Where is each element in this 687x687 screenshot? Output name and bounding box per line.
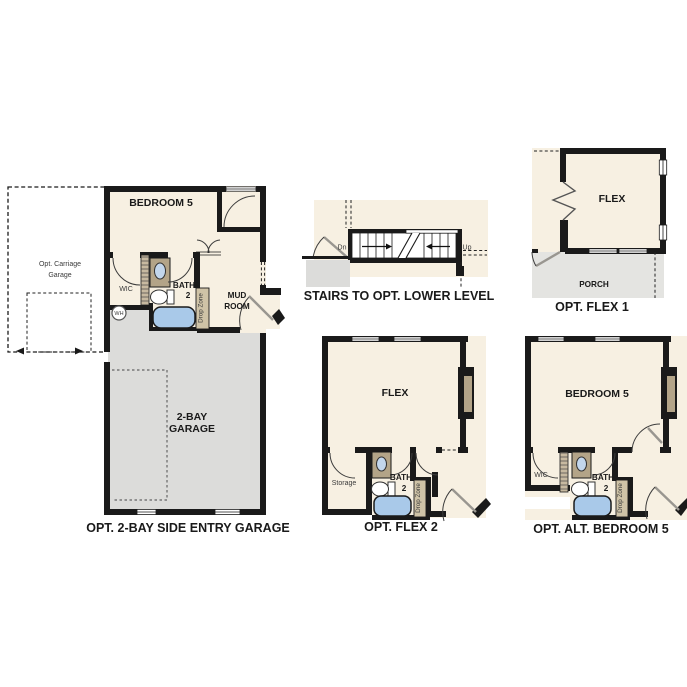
wic-label: WIC (534, 472, 548, 479)
bedroom5-label: BEDROOM 5 (129, 197, 193, 209)
stairs-plan: Dn Up STAIRS TO OPT. LOWER LEVEL (302, 200, 495, 303)
floorplan-options-sheet: Opt. Carriage Garage (0, 0, 687, 687)
bath2-label-1: BATH (390, 473, 412, 482)
flex2-plan-caption: OPT. FLEX 2 (364, 520, 438, 534)
flex2-room-label: FLEX (382, 387, 409, 399)
flex2-plan: FLEX Storage BATH 2 Drop Zone OPT. FLEX … (320, 336, 491, 534)
alt-bedroom5-plan: BEDROOM 5 WIC BATH 2 Drop Zone OPT. ALT.… (523, 336, 687, 536)
swing-arrow-right-icon (75, 348, 83, 355)
svg-text:WH: WH (114, 311, 123, 317)
alt-bedroom5-room-label: BEDROOM 5 (565, 388, 629, 400)
bathtub-icon (574, 496, 611, 516)
bath2-label-2: 2 (604, 484, 609, 493)
drop-zone-label: Drop Zone (415, 483, 422, 513)
drop-zone-label: Drop Zone (198, 293, 205, 323)
bath2-label-2: 2 (186, 291, 191, 300)
vanity-sink-icon (150, 258, 170, 287)
garage-plan: Opt. Carriage Garage (8, 186, 290, 535)
bathtub-icon (374, 496, 411, 516)
stairs-up-label: Up (463, 245, 472, 252)
fireplace-icon (458, 367, 474, 419)
garage-label-2: GARAGE (169, 423, 215, 435)
garage-label-1: 2-BAY (177, 411, 208, 423)
toilet-icon (372, 482, 396, 496)
alt-bedroom5-plan-caption: OPT. ALT. BEDROOM 5 (533, 522, 668, 536)
carriage-garage-label-2: Garage (48, 272, 71, 279)
toilet-icon (151, 290, 175, 304)
bath2-label-1: BATH (173, 281, 195, 290)
flex1-plan: FLEX PORCH OPT. FLEX 1 (532, 148, 667, 314)
porch-floor (532, 252, 664, 298)
bath2-label-2: 2 (402, 484, 407, 493)
vanity-sink-icon (372, 452, 391, 478)
closet-hatched-wall (141, 255, 149, 305)
window (226, 187, 256, 191)
closet-hatched-wall (560, 452, 568, 492)
carriage-garage-label-1: Opt. Carriage (39, 261, 81, 268)
bath2-label-1: BATH (592, 473, 614, 482)
flex1-plan-caption: OPT. FLEX 1 (555, 300, 629, 314)
porch-label: PORCH (579, 280, 609, 289)
stairs-landing-pad (306, 260, 350, 287)
bathtub-icon (153, 307, 195, 328)
stairs-plan-caption: STAIRS TO OPT. LOWER LEVEL (304, 289, 495, 303)
flex1-room-label: FLEX (599, 193, 626, 205)
vanity-sink-icon (572, 452, 591, 478)
stairs-down-label: Dn (338, 245, 347, 252)
storage-label: Storage (332, 480, 357, 487)
opt-carriage-garage-outline: Opt. Carriage Garage (8, 187, 105, 355)
wic-label: WIC (119, 286, 133, 293)
water-heater-icon: WH (112, 306, 126, 320)
drop-zone-label: Drop Zone (617, 483, 624, 513)
mud-room-label-1: MUD (228, 291, 247, 300)
mud-room-label-2: ROOM (224, 302, 250, 311)
toilet-icon (572, 482, 596, 496)
floorplan-svg: Opt. Carriage Garage (0, 0, 687, 687)
fireplace-icon (661, 367, 677, 419)
swing-arrow-left-icon (16, 348, 24, 355)
garage-plan-caption: OPT. 2-BAY SIDE ENTRY GARAGE (86, 521, 290, 535)
